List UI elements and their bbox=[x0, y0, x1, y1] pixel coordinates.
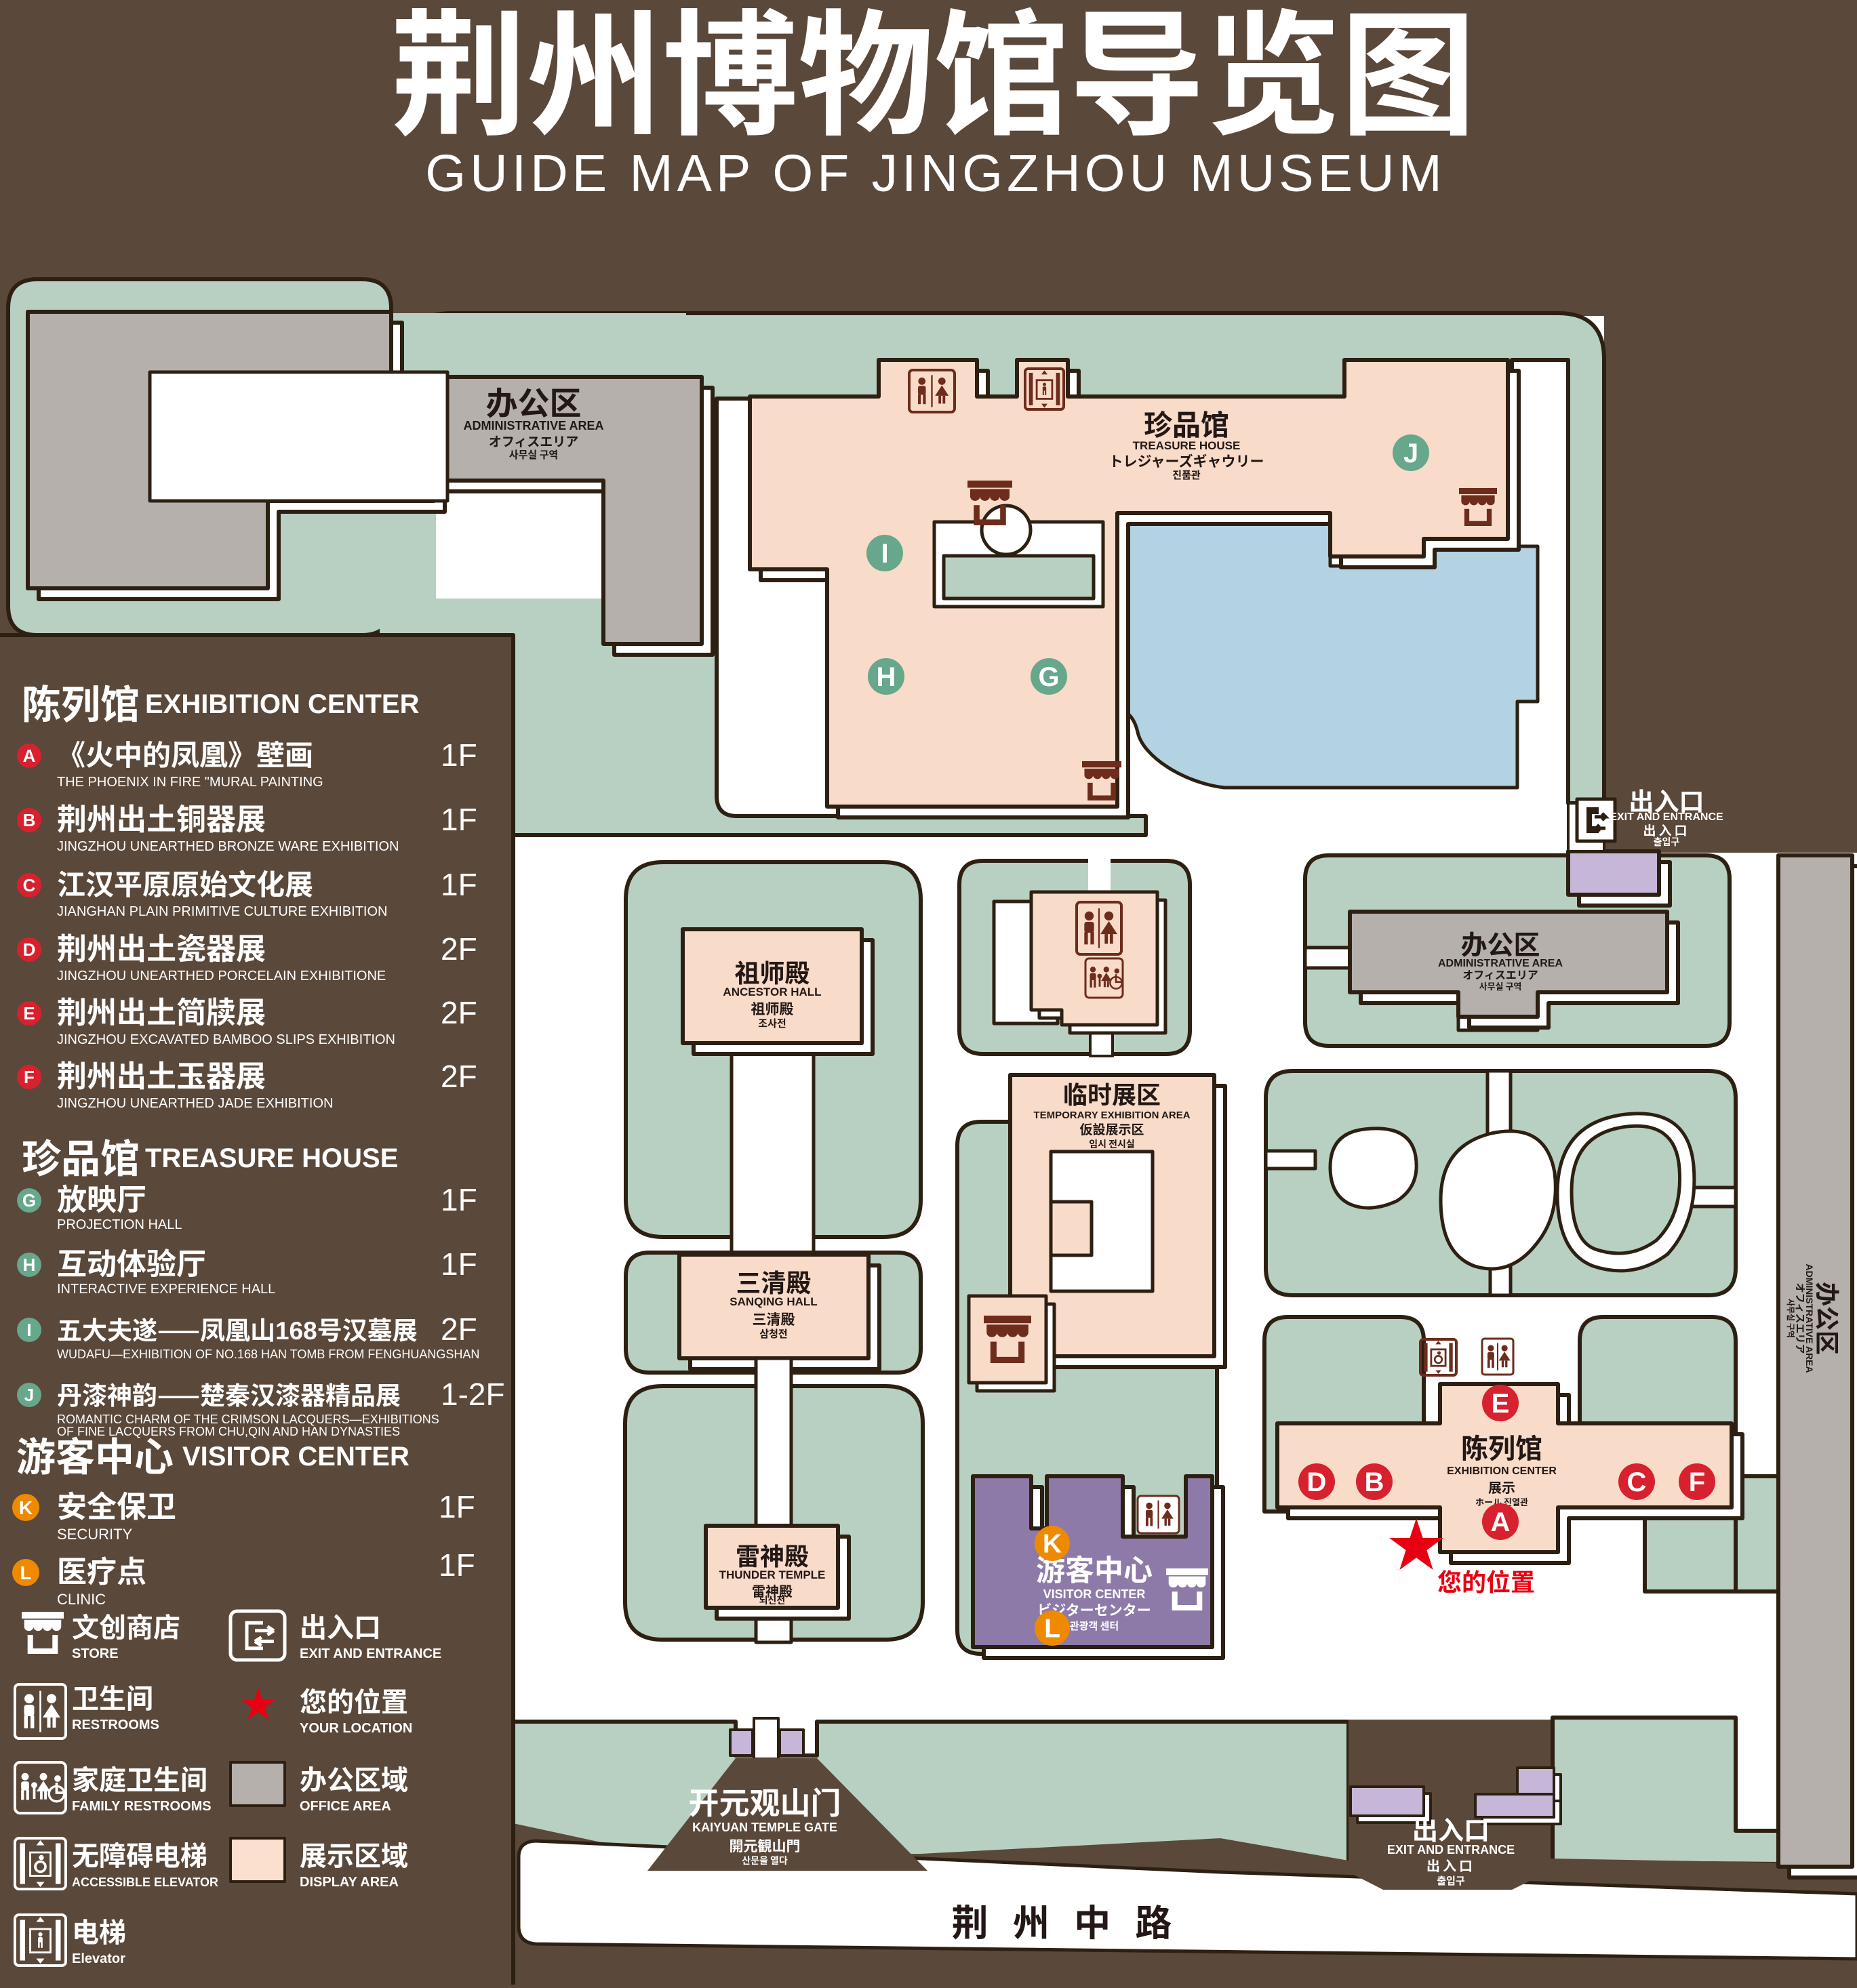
svg-text:THE PHOENIX IN FIRE "MURAL PAI: THE PHOENIX IN FIRE "MURAL PAINTING bbox=[57, 775, 323, 790]
svg-text:祖师殿: 祖师殿 bbox=[735, 953, 810, 990]
svg-text:VISITOR CENTER: VISITOR CENTER bbox=[182, 1442, 410, 1472]
svg-text:卫生间: 卫生间 bbox=[72, 1677, 153, 1716]
svg-text:荆州出土玉器展: 荆州出土玉器展 bbox=[57, 1052, 266, 1095]
svg-text:1F: 1F bbox=[441, 1246, 477, 1282]
svg-text:EXHIBITION CENTER: EXHIBITION CENTER bbox=[145, 689, 420, 719]
svg-text:2F: 2F bbox=[441, 995, 477, 1030]
svg-text:SECURITY: SECURITY bbox=[57, 1526, 133, 1543]
svg-text:互动体验厅: 互动体验厅 bbox=[57, 1240, 206, 1283]
svg-text:ROMANTIC CHARM OF THE CRIMSON: ROMANTIC CHARM OF THE CRIMSON LACQUERS—E… bbox=[57, 1413, 439, 1426]
svg-text:E: E bbox=[23, 1003, 35, 1023]
svg-text:YOUR LOCATION: YOUR LOCATION bbox=[300, 1721, 412, 1736]
svg-text:출입구: 출입구 bbox=[1437, 1873, 1465, 1888]
svg-text:출입구: 출입구 bbox=[1654, 835, 1680, 849]
svg-text:조사전: 조사전 bbox=[758, 1016, 786, 1030]
svg-text:VISITOR CENTER: VISITOR CENTER bbox=[1043, 1587, 1146, 1601]
svg-text:L: L bbox=[20, 1562, 31, 1583]
svg-text:《火中的凤凰》壁画: 《火中的凤凰》壁画 bbox=[57, 733, 313, 774]
svg-text:2F: 2F bbox=[441, 1059, 477, 1094]
svg-text:三清殿: 三清殿 bbox=[736, 1263, 812, 1299]
svg-text:임시 전시실: 임시 전시실 bbox=[1089, 1137, 1135, 1151]
svg-text:安全保卫: 安全保卫 bbox=[57, 1482, 176, 1526]
svg-text:开元观山门: 开元观山门 bbox=[688, 1779, 841, 1823]
svg-text:出入口: 出入口 bbox=[1412, 1810, 1490, 1847]
svg-text:L: L bbox=[1044, 1615, 1060, 1644]
svg-text:KAIYUAN TEMPLE GATE: KAIYUAN TEMPLE GATE bbox=[692, 1821, 837, 1834]
svg-text:电梯: 电梯 bbox=[72, 1911, 126, 1950]
svg-text:文创商店: 文创商店 bbox=[72, 1606, 180, 1645]
svg-text:WUDAFU—EXHIBITION OF NO.168 HA: WUDAFU—EXHIBITION OF NO.168 HAN TOMB FRO… bbox=[57, 1347, 479, 1361]
svg-text:JINGZHOU UNEARTHED PORCELAIN E: JINGZHOU UNEARTHED PORCELAIN EXHIBITIONE bbox=[57, 969, 386, 983]
svg-text:EXIT AND ENTRANCE: EXIT AND ENTRANCE bbox=[300, 1646, 441, 1661]
svg-text:진품관: 진품관 bbox=[1172, 468, 1201, 482]
svg-text:산문을 열다: 산문을 열다 bbox=[742, 1854, 788, 1867]
svg-text:ACCESSIBLE ELEVATOR: ACCESSIBLE ELEVATOR bbox=[72, 1875, 218, 1889]
svg-text:展示: 展示 bbox=[1488, 1477, 1515, 1497]
svg-text:荆州出土瓷器展: 荆州出土瓷器展 bbox=[57, 925, 266, 968]
svg-text:뇌신전: 뇌신전 bbox=[759, 1594, 786, 1607]
svg-text:EXIT AND ENTRANCE: EXIT AND ENTRANCE bbox=[1387, 1843, 1515, 1857]
svg-text:I: I bbox=[26, 1320, 31, 1340]
svg-text:C: C bbox=[23, 875, 36, 895]
svg-text:出入口: 出入口 bbox=[1426, 1855, 1475, 1875]
svg-text:江汉平原原始文化展: 江汉平原原始文化展 bbox=[57, 862, 313, 904]
svg-text:1F: 1F bbox=[441, 802, 477, 837]
svg-text:K: K bbox=[1043, 1530, 1062, 1559]
svg-text:出入口: 出入口 bbox=[300, 1606, 381, 1645]
svg-text:D: D bbox=[23, 939, 36, 960]
svg-text:J: J bbox=[1403, 439, 1418, 468]
svg-text:B: B bbox=[23, 810, 36, 830]
svg-text:您的位置: 您的位置 bbox=[300, 1680, 408, 1720]
svg-text:家庭卫生间: 家庭卫生间 bbox=[72, 1758, 207, 1798]
svg-text:SANQING HALL: SANQING HALL bbox=[730, 1295, 817, 1308]
svg-text:EXHIBITION CENTER: EXHIBITION CENTER bbox=[1447, 1465, 1557, 1477]
svg-text:STORE: STORE bbox=[72, 1646, 119, 1661]
svg-text:2F: 2F bbox=[441, 931, 477, 967]
svg-text:관광객 센터: 관광객 센터 bbox=[1070, 1619, 1119, 1633]
svg-text:F: F bbox=[1689, 1467, 1705, 1497]
svg-text:H: H bbox=[877, 662, 896, 692]
svg-text:TREASURE HOUSE: TREASURE HOUSE bbox=[145, 1143, 398, 1173]
svg-text:JINGZHOU UNEARTHED JADE EXHIBI: JINGZHOU UNEARTHED JADE EXHIBITION bbox=[57, 1096, 333, 1111]
svg-text:G: G bbox=[1038, 662, 1059, 692]
svg-text:ADMINISTRATIVE AREA: ADMINISTRATIVE AREA bbox=[464, 419, 604, 432]
svg-text:K: K bbox=[19, 1497, 33, 1518]
svg-text:사무실 구역: 사무실 구역 bbox=[1785, 1299, 1797, 1338]
svg-text:I: I bbox=[881, 539, 888, 569]
svg-text:GUIDE MAP OF JINGZHOU MUSEUM: GUIDE MAP OF JINGZHOU MUSEUM bbox=[425, 144, 1446, 203]
svg-text:放映厅: 放映厅 bbox=[57, 1175, 146, 1219]
svg-text:E: E bbox=[1492, 1389, 1510, 1419]
svg-text:1-2F: 1-2F bbox=[441, 1377, 505, 1412]
svg-text:H: H bbox=[23, 1255, 36, 1275]
svg-text:无障碍电梯: 无障碍电梯 bbox=[72, 1834, 207, 1873]
svg-text:珍品馆: 珍品馆 bbox=[1144, 403, 1229, 444]
svg-text:1F: 1F bbox=[439, 1547, 475, 1583]
svg-text:游客中心: 游客中心 bbox=[16, 1425, 174, 1482]
svg-text:DISPLAY AREA: DISPLAY AREA bbox=[300, 1875, 399, 1890]
svg-text:FAMILY RESTROOMS: FAMILY RESTROOMS bbox=[72, 1799, 212, 1814]
svg-text:A: A bbox=[1491, 1507, 1511, 1537]
svg-text:荆 州 中 路: 荆 州 中 路 bbox=[952, 1893, 1180, 1947]
svg-text:INTERACTIVE EXPERIENCE HALL: INTERACTIVE EXPERIENCE HALL bbox=[57, 1282, 275, 1297]
svg-text:展示区域: 展示区域 bbox=[300, 1834, 408, 1873]
svg-text:D: D bbox=[1307, 1467, 1327, 1497]
svg-text:RESTROOMS: RESTROOMS bbox=[72, 1718, 159, 1732]
svg-text:Elevator: Elevator bbox=[72, 1951, 125, 1966]
svg-text:2F: 2F bbox=[441, 1312, 477, 1347]
svg-text:您的位置: 您的位置 bbox=[1437, 1563, 1535, 1598]
svg-text:1F: 1F bbox=[441, 867, 477, 902]
svg-text:B: B bbox=[1365, 1467, 1384, 1497]
svg-text:G: G bbox=[22, 1190, 36, 1211]
svg-text:A: A bbox=[23, 746, 36, 766]
svg-text:丹漆神韵——楚秦汉漆器精品展: 丹漆神韵——楚秦汉漆器精品展 bbox=[57, 1375, 401, 1412]
svg-text:PROJECTION HALL: PROJECTION HALL bbox=[57, 1217, 182, 1232]
svg-text:F: F bbox=[24, 1067, 35, 1087]
svg-text:陈列馆: 陈列馆 bbox=[22, 673, 140, 730]
svg-text:OFFICE AREA: OFFICE AREA bbox=[300, 1799, 391, 1814]
svg-text:JINGZHOU UNEARTHED BRONZE WARE: JINGZHOU UNEARTHED BRONZE WARE EXHIBITIO… bbox=[57, 839, 399, 854]
svg-text:1F: 1F bbox=[441, 737, 477, 773]
svg-text:临时展区: 临时展区 bbox=[1063, 1076, 1161, 1111]
svg-text:办公区: 办公区 bbox=[1460, 925, 1540, 962]
svg-text:五大夫遂——凤凰山168号汉墓展: 五大夫遂——凤凰山168号汉墓展 bbox=[57, 1310, 418, 1347]
svg-text:1F: 1F bbox=[441, 1182, 477, 1217]
svg-text:荆州出土铜器展: 荆州出土铜器展 bbox=[57, 795, 266, 838]
svg-text:仮設展示区: 仮設展示区 bbox=[1079, 1120, 1144, 1138]
svg-text:办公区: 办公区 bbox=[1811, 1282, 1846, 1355]
svg-text:開元観山門: 開元観山門 bbox=[730, 1835, 801, 1856]
svg-text:J: J bbox=[24, 1385, 34, 1405]
svg-text:荆州出土简牍展: 荆州出土简牍展 bbox=[57, 988, 266, 1032]
svg-text:雷神殿: 雷神殿 bbox=[736, 1537, 809, 1573]
svg-text:삼청전: 삼청전 bbox=[759, 1326, 787, 1341]
svg-text:THUNDER TEMPLE: THUNDER TEMPLE bbox=[719, 1568, 826, 1581]
svg-text:办公区域: 办公区域 bbox=[300, 1758, 408, 1798]
svg-text:사무실 구역: 사무실 구역 bbox=[509, 447, 558, 462]
svg-text:ANCESTOR HALL: ANCESTOR HALL bbox=[723, 986, 821, 998]
svg-text:JIANGHAN PLAIN PRIMITIVE CULTU: JIANGHAN PLAIN PRIMITIVE CULTURE EXHIBIT… bbox=[57, 904, 387, 919]
svg-text:C: C bbox=[1627, 1467, 1647, 1497]
svg-text:医疗点: 医疗点 bbox=[57, 1547, 146, 1591]
svg-text:办公区: 办公区 bbox=[486, 378, 582, 424]
svg-text:荆州博物馆导览图: 荆州博物馆导览图 bbox=[391, 0, 1476, 163]
svg-text:1F: 1F bbox=[439, 1489, 475, 1524]
svg-text:사무실 구역: 사무실 구역 bbox=[1479, 979, 1522, 992]
svg-text:JINGZHOU EXCAVATED BAMBOO SLIP: JINGZHOU EXCAVATED BAMBOO SLIPS EXHIBITI… bbox=[57, 1032, 395, 1047]
svg-text:陈列馆: 陈列馆 bbox=[1461, 1427, 1542, 1466]
